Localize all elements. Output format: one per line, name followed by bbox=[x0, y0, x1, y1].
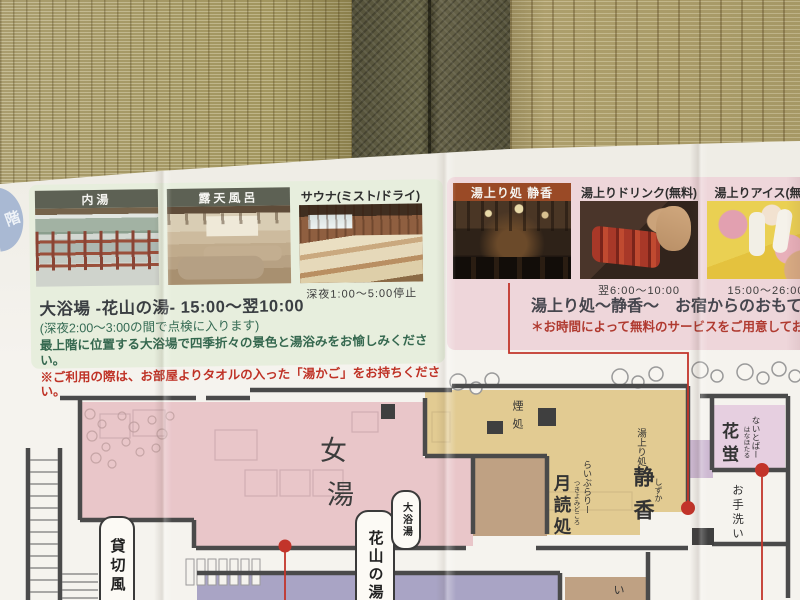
card-shizuka-title: 湯上り処 静香 bbox=[453, 183, 571, 201]
card-openair-bath: 露天風呂 bbox=[167, 187, 292, 304]
card-free-drink-title: 湯上りドリンク(無料) bbox=[580, 183, 698, 201]
map-label-hanahotaru: 花蛍 bbox=[716, 422, 741, 468]
bath-photo-cards: 内湯 露天風呂 サウナ(ミスト/ドライ) 深夜1:00～5:00停止 bbox=[35, 185, 424, 305]
floor-tab-label: 階 bbox=[2, 205, 23, 230]
floor-tab: 階 bbox=[0, 184, 27, 251]
free-drink-photo bbox=[580, 201, 698, 279]
bath-warning: ※ご利用の際は、お部屋よりタオルの入った「湯かご」をお持ちください。 bbox=[40, 365, 442, 400]
yuagari-photo-cards: 湯上り処 静香 湯上りドリンク(無料) 翌6:00～10:00 湯上りアイス(無… bbox=[453, 183, 800, 298]
card-indoor-bath: 内湯 bbox=[35, 189, 160, 306]
yuagari-note: ＊お時間によって無料のサービスをご用意してお bbox=[531, 320, 800, 335]
map-pill-hanayama-no-yu: 花山の湯 bbox=[355, 510, 395, 600]
bath-text-block: 大浴場 -花山の湯- 15:00～翌10:00 (深夜2:00～3:00の間で点… bbox=[39, 295, 442, 400]
map-label-restroom: お手洗い bbox=[729, 484, 745, 542]
yuagari-text-block: 湯上り処～静香～ お宿からのおもてな ＊お時間によって無料のサービスをご用意して… bbox=[531, 298, 800, 335]
map-label-shizuka-furigana: しずか bbox=[653, 478, 664, 502]
map-label-nightbar-sub: ないとばー bbox=[750, 416, 762, 459]
map-label-smoking: 煙処 bbox=[509, 400, 525, 436]
card-indoor-bath-title: 内湯 bbox=[35, 189, 158, 209]
map-pill-private-bath: 貸切風 bbox=[99, 516, 135, 600]
indoor-bath-photo bbox=[35, 207, 159, 287]
card-shizuka-lounge: 湯上り処 静香 bbox=[453, 183, 571, 298]
map-label-yuagari-sub: 湯上り処 bbox=[633, 428, 647, 466]
card-sauna: サウナ(ミスト/ドライ) 深夜1:00～5:00停止 bbox=[299, 185, 424, 302]
bath-info-panel: 内湯 露天風呂 サウナ(ミスト/ドライ) 深夜1:00～5:00停止 大浴場 -… bbox=[29, 179, 446, 369]
card-free-drink: 湯上りドリンク(無料) 翌6:00～10:00 bbox=[580, 183, 698, 298]
card-free-ice-title: 湯上りアイス(無料) bbox=[707, 183, 800, 201]
openair-bath-photo bbox=[167, 205, 291, 285]
bath-description: 最上階に位置する大浴場で四季折々の景色と湯浴みをお愉しみください。 bbox=[40, 333, 442, 368]
map-label-library-sub: らいぶらりー bbox=[581, 460, 594, 514]
yuagari-heading: 湯上り処～静香～ お宿からのおもてな bbox=[531, 298, 800, 317]
shizuka-lounge-photo bbox=[453, 201, 571, 279]
map-label-hanahotaru-furigana: はなほたる bbox=[740, 426, 750, 459]
map-pill-daiyokuto: 大浴湯 bbox=[391, 490, 421, 550]
map-label-partial-room: い bbox=[610, 584, 626, 595]
sauna-photo bbox=[299, 203, 423, 283]
map-label-womens-bath-1: 女 bbox=[312, 436, 351, 463]
free-ice-hours: 15:00～26:00 bbox=[707, 282, 800, 298]
free-drink-hours: 翌6:00～10:00 bbox=[580, 282, 698, 298]
map-label-womens-bath-2: 湯 bbox=[319, 480, 358, 507]
yuagari-info-panel: 湯上り処 静香 湯上りドリンク(無料) 翌6:00～10:00 湯上りアイス(無… bbox=[447, 177, 800, 350]
card-free-ice: 湯上りアイス(無料) 15:00～26:00 bbox=[707, 183, 800, 298]
brochure-photo-scene: 階 内湯 露天風呂 サウナ(ミスト/ドライ) 深夜1:00～5:00停止 bbox=[0, 0, 800, 600]
card-sauna-title: サウナ(ミスト/ドライ) bbox=[299, 185, 422, 205]
free-ice-photo bbox=[707, 201, 800, 279]
card-openair-bath-title: 露天風呂 bbox=[167, 187, 290, 207]
map-label-library: 月読処 bbox=[550, 474, 575, 539]
